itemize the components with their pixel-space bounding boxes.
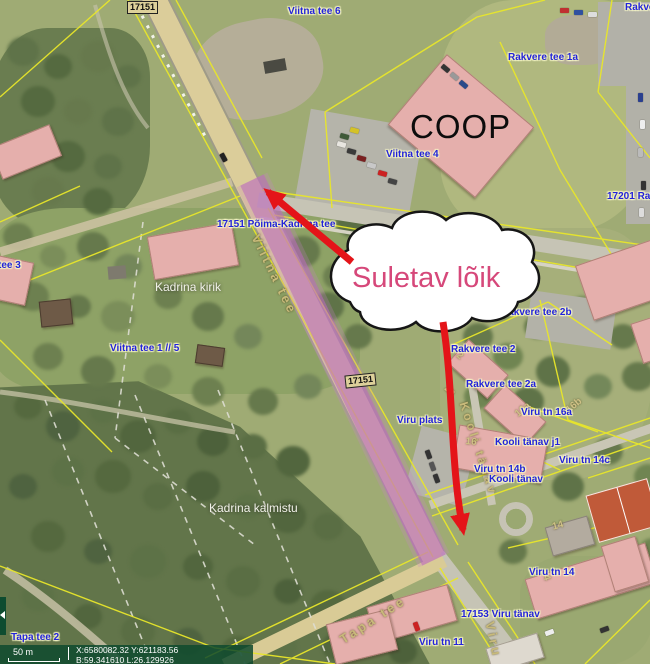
- coordinate-readout: X:6580082.32 Y:621183.56 B:59.341610 L:2…: [76, 646, 178, 664]
- scale-ruler: [8, 658, 60, 662]
- status-bar: 50 m X:6580082.32 Y:621183.56 B:59.34161…: [0, 645, 253, 664]
- coordinate-bl: B:59.341610 L:26.129926: [76, 656, 178, 664]
- chevron-left-icon: [0, 611, 5, 619]
- annotation-arrow-up-left: [268, 192, 352, 262]
- map-canvas[interactable]: 17151 17151 Viitna tee Kooli tänav Tapa …: [0, 0, 650, 664]
- status-separator: [68, 647, 69, 660]
- panel-collapse-handle[interactable]: [0, 597, 6, 635]
- scale-label: 50 m: [13, 647, 33, 657]
- annotation-arrow-down: [443, 322, 463, 530]
- annotation-cloud-text: Suletav lõik: [352, 262, 500, 295]
- annotation-layer: [0, 0, 650, 664]
